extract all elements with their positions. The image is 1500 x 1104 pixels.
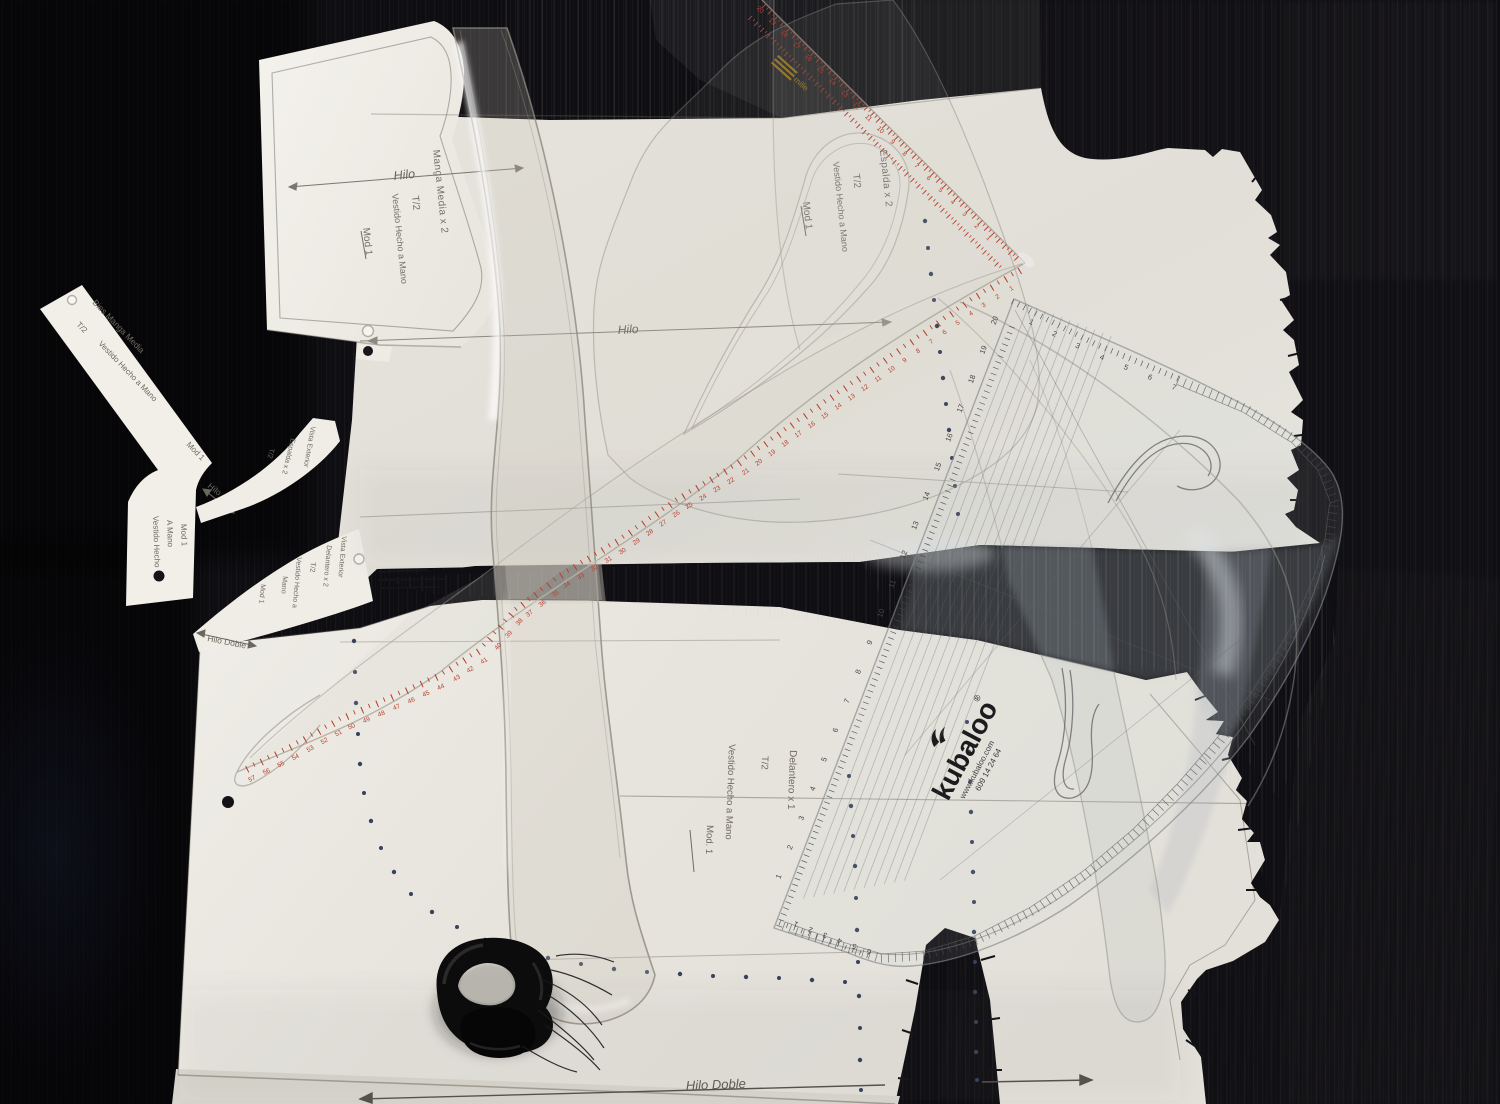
svg-text:Vestido Hecho: Vestido Hecho xyxy=(151,516,162,568)
svg-text:T/2: T/2 xyxy=(409,195,421,211)
svg-text:Hilo: Hilo xyxy=(393,167,416,183)
svg-text:T/2: T/2 xyxy=(308,562,316,573)
svg-text:Mod. 1: Mod. 1 xyxy=(703,825,715,854)
svg-text:Delantero x 1: Delantero x 1 xyxy=(785,750,798,810)
svg-text:T/2: T/2 xyxy=(759,756,770,770)
svg-text:A Mano: A Mano xyxy=(165,520,175,548)
svg-text:Mod 1: Mod 1 xyxy=(179,524,189,547)
